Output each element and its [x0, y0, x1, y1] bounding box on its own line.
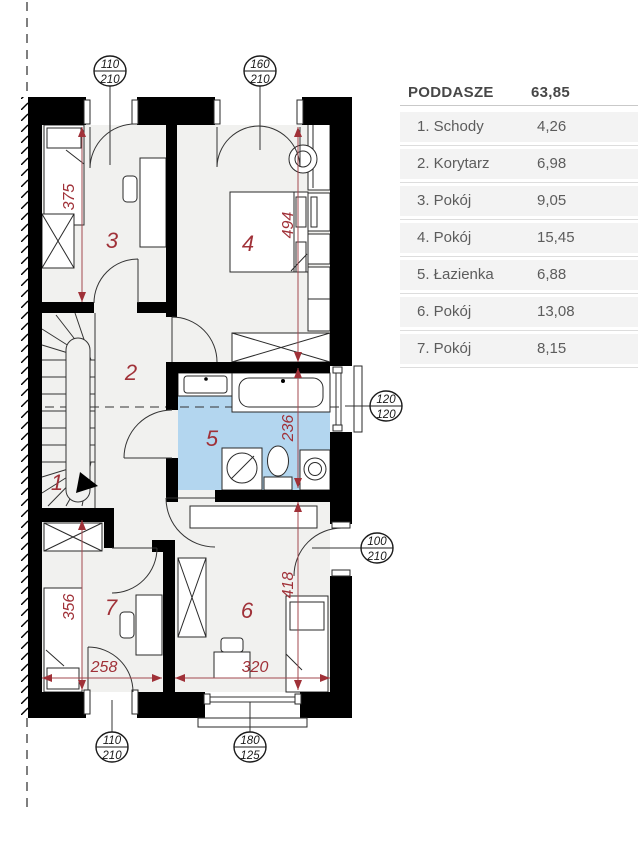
room-label-room3: 3 — [106, 228, 119, 253]
window-bottom-right — [198, 694, 307, 727]
marker-height: 210 — [99, 74, 120, 86]
dim-room7-depth: 356 — [61, 594, 78, 621]
window-sill — [198, 718, 307, 727]
room-name: 4. Pokój — [417, 223, 471, 253]
room-area: 6,88 — [537, 260, 566, 290]
room-area: 15,45 — [537, 223, 575, 253]
room-name: 6. Pokój — [417, 297, 471, 327]
room-name: 2. Korytarz — [417, 149, 490, 179]
dim-room6-width: 320 — [242, 659, 269, 676]
marker-width: 110 — [103, 735, 122, 747]
wardrobe — [178, 558, 206, 637]
toilet-bowl — [268, 446, 289, 476]
legend-row-room3: 3. Pokój 9,05 — [400, 186, 638, 216]
roof-eave-line — [21, 2, 28, 812]
marker-bottom-right-window: 180 125 — [234, 702, 266, 762]
marker-width: 160 — [250, 59, 270, 71]
legend-header: PODDASZE 63,85 — [400, 84, 638, 106]
dim-room3-depth: 375 — [61, 184, 78, 211]
room-name: 1. Schody — [417, 112, 484, 142]
marker-bottom-left-window: 110 210 — [96, 700, 128, 762]
marker-height: 210 — [366, 551, 387, 563]
wardrobe — [44, 523, 102, 551]
legend-row-corridor: 2. Korytarz 6,98 — [400, 149, 638, 179]
chair — [221, 638, 243, 652]
desk — [136, 595, 162, 655]
marker-width: 180 — [240, 735, 260, 747]
chair — [120, 612, 134, 638]
dim-room4-depth: 494 — [280, 212, 297, 239]
desk — [140, 158, 166, 247]
dim-room7-width: 258 — [90, 659, 118, 676]
pillow — [290, 602, 324, 630]
bathtub-inner — [239, 378, 323, 407]
room-area: 6,98 — [537, 149, 566, 179]
room-area: 9,05 — [537, 186, 566, 216]
legend-total-area: 63,85 — [531, 84, 570, 101]
marker-height: 125 — [240, 750, 260, 762]
pillow — [47, 128, 81, 148]
room-label-room6: 6 — [241, 598, 254, 623]
chair — [123, 176, 137, 202]
wardrobe-low — [232, 333, 330, 362]
room-label-stairs: 1 — [51, 470, 63, 495]
room-area: 13,08 — [537, 297, 575, 327]
room-legend: PODDASZE 63,85 1. Schody 4,26 2. Korytar… — [400, 84, 638, 371]
room-label-bathroom: 5 — [206, 426, 219, 451]
dim-bathroom-depth: 236 — [280, 415, 297, 443]
marker-width: 100 — [367, 536, 387, 548]
marker-bathroom-window: 120 120 — [370, 391, 402, 421]
marker-height: 120 — [376, 409, 396, 421]
window-bathroom — [333, 366, 362, 432]
room-area: 4,26 — [537, 112, 566, 142]
legend-row-room6: 6. Pokój 13,08 — [400, 297, 638, 327]
faucet — [204, 377, 208, 381]
room-name: 3. Pokój — [417, 186, 471, 216]
wardrobe — [42, 214, 74, 268]
room-name: 5. Łazienka — [417, 260, 494, 290]
legend-title: PODDASZE — [408, 84, 494, 101]
room-label-corridor: 2 — [124, 360, 137, 385]
marker-width: 120 — [376, 394, 396, 406]
round-side-table — [289, 145, 317, 173]
room-name: 7. Pokój — [417, 334, 471, 364]
room-area: 8,15 — [537, 334, 566, 364]
toilet-tank — [264, 477, 292, 490]
room-label-room4: 4 — [242, 231, 254, 256]
marker-height: 210 — [101, 750, 122, 762]
legend-row-room4: 4. Pokój 15,45 — [400, 223, 638, 253]
marker-width: 110 — [101, 59, 120, 71]
legend-row-stairs: 1. Schody 4,26 — [400, 112, 638, 142]
room-label-room7: 7 — [105, 595, 118, 620]
legend-row-bathroom: 5. Łazienka 6,88 — [400, 260, 638, 290]
legend-row-room7: 7. Pokój 8,15 — [400, 334, 638, 364]
nightstand — [308, 234, 330, 264]
marker-height: 210 — [249, 74, 270, 86]
dim-room6-depth: 418 — [280, 572, 297, 599]
faucet — [281, 379, 285, 383]
